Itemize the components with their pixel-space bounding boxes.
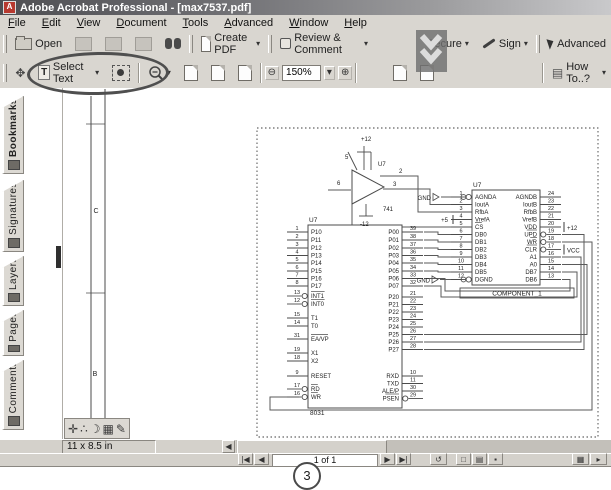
chevron-down-icon: ▾ bbox=[465, 39, 469, 48]
svg-text:GND: GND bbox=[418, 196, 432, 202]
toolbar-grip[interactable] bbox=[3, 64, 7, 82]
svg-text:DGND: DGND bbox=[475, 278, 493, 284]
review-comment-button[interactable]: Review & Comment ▾ bbox=[275, 29, 373, 59]
toolbar-grip[interactable] bbox=[3, 35, 7, 53]
svg-text:741: 741 bbox=[383, 207, 394, 213]
chevron-down-icon: ▾ bbox=[602, 68, 606, 77]
comments-icon bbox=[8, 416, 20, 426]
first-page-button[interactable]: |◀ bbox=[238, 453, 253, 465]
svg-text:CS: CS bbox=[475, 225, 483, 231]
continuous-view-button[interactable]: ▤ bbox=[472, 453, 487, 465]
svg-text:12: 12 bbox=[294, 298, 300, 304]
svg-text:27: 27 bbox=[410, 336, 416, 342]
svg-text:14: 14 bbox=[294, 320, 300, 326]
svg-text:AGNDA: AGNDA bbox=[475, 195, 496, 201]
toolbar-grip[interactable] bbox=[268, 35, 272, 53]
zoom-out-button[interactable]: ⊖ bbox=[265, 66, 279, 80]
svg-text:EA/VP: EA/VP bbox=[311, 337, 329, 343]
svg-text:15: 15 bbox=[548, 258, 554, 264]
scroll-left-button[interactable]: ◀ bbox=[222, 440, 235, 453]
svg-text:33: 33 bbox=[410, 272, 416, 278]
svg-text:RESET: RESET bbox=[311, 374, 331, 380]
svg-text:11: 11 bbox=[410, 377, 416, 383]
svg-text:P12: P12 bbox=[311, 246, 322, 252]
toolbar-grip[interactable] bbox=[536, 35, 540, 53]
fit-width-button[interactable] bbox=[233, 62, 257, 84]
svg-text:P03: P03 bbox=[388, 254, 399, 260]
svg-text:28: 28 bbox=[410, 343, 416, 349]
svg-text:T1: T1 bbox=[311, 316, 319, 322]
svg-text:P16: P16 bbox=[311, 277, 322, 283]
svg-text:P01: P01 bbox=[388, 238, 399, 244]
svg-text:31: 31 bbox=[294, 333, 300, 339]
step-number-annotation: 3 bbox=[293, 462, 321, 490]
svg-text:37: 37 bbox=[410, 242, 416, 248]
status-extra-button[interactable]: ▦ bbox=[572, 453, 589, 465]
svg-text:C: C bbox=[93, 208, 98, 215]
facing-view-button[interactable]: ▪ bbox=[488, 453, 503, 465]
menu-tools[interactable]: Tools bbox=[175, 17, 217, 29]
svg-text:IoutB: IoutB bbox=[523, 203, 537, 209]
svg-text:14: 14 bbox=[548, 266, 554, 272]
svg-text:10: 10 bbox=[410, 370, 416, 376]
svg-text:16: 16 bbox=[294, 391, 300, 397]
svg-text:U7: U7 bbox=[473, 182, 482, 189]
svg-text:P11: P11 bbox=[311, 238, 322, 244]
how-to-icon: ▤ bbox=[552, 68, 563, 78]
svg-text:4: 4 bbox=[459, 213, 462, 219]
cursor-icon bbox=[547, 37, 556, 49]
svg-text:15: 15 bbox=[294, 312, 300, 318]
toolbar-grip[interactable] bbox=[189, 35, 193, 53]
svg-text:23: 23 bbox=[410, 306, 416, 312]
svg-text:DB4: DB4 bbox=[475, 263, 487, 269]
svg-text:1: 1 bbox=[295, 226, 298, 232]
svg-text:19: 19 bbox=[294, 347, 300, 353]
single-page-view-button[interactable]: □ bbox=[456, 453, 471, 465]
svg-text:35: 35 bbox=[410, 257, 416, 263]
svg-text:+12: +12 bbox=[361, 137, 372, 143]
svg-text:DB2: DB2 bbox=[475, 248, 487, 254]
menu-help[interactable]: Help bbox=[336, 17, 375, 29]
svg-text:8: 8 bbox=[295, 280, 298, 286]
advanced-editing-button[interactable]: Advanced bbox=[543, 35, 611, 53]
create-pdf-button[interactable]: Create PDF ▾ bbox=[196, 29, 265, 59]
svg-text:RfbA: RfbA bbox=[475, 210, 488, 216]
how-to-button[interactable]: ▤ How To..? ▾ bbox=[547, 58, 611, 88]
svg-text:4: 4 bbox=[295, 249, 298, 255]
svg-text:CLR: CLR bbox=[525, 248, 538, 254]
svg-text:P17: P17 bbox=[311, 284, 322, 290]
svg-text:P02: P02 bbox=[388, 246, 399, 252]
svg-text:VrefB: VrefB bbox=[522, 218, 537, 224]
svg-text:17: 17 bbox=[294, 383, 300, 389]
zoom-in-button[interactable]: ⊕ bbox=[338, 66, 352, 80]
svg-text:38: 38 bbox=[410, 234, 416, 240]
halftone-icon[interactable]: ☽ bbox=[90, 422, 101, 436]
svg-text:9: 9 bbox=[295, 370, 298, 376]
svg-text:6: 6 bbox=[459, 228, 462, 234]
svg-text:A1: A1 bbox=[530, 255, 538, 261]
last-page-button[interactable]: ▶| bbox=[396, 453, 411, 465]
menu-window[interactable]: Window bbox=[281, 17, 336, 29]
chevron-down-icon: ▾ bbox=[524, 39, 528, 48]
svg-text:P05: P05 bbox=[388, 269, 399, 275]
status-extra-button-2[interactable]: ▸ bbox=[590, 453, 607, 465]
menu-advanced[interactable]: Advanced bbox=[216, 17, 281, 29]
svg-text:10: 10 bbox=[458, 258, 464, 264]
svg-text:TXD: TXD bbox=[387, 382, 400, 388]
window-title: Adobe Acrobat Professional - [max7537.pd… bbox=[20, 2, 251, 14]
svg-text:30: 30 bbox=[410, 385, 416, 391]
chevron-down-icon: ▾ bbox=[256, 39, 260, 48]
svg-text:P23: P23 bbox=[388, 318, 399, 324]
svg-text:DB5: DB5 bbox=[475, 270, 487, 276]
svg-text:20: 20 bbox=[548, 221, 554, 227]
svg-text:5: 5 bbox=[295, 257, 298, 263]
rotate-page-icon bbox=[393, 65, 407, 81]
svg-text:19: 19 bbox=[548, 228, 554, 234]
sidebar-tab-signatures[interactable]: Signatures bbox=[2, 180, 24, 252]
svg-text:6: 6 bbox=[337, 181, 341, 187]
svg-text:26: 26 bbox=[410, 328, 416, 334]
pan-icon[interactable]: ✛ bbox=[68, 422, 78, 436]
svg-text:P13: P13 bbox=[311, 254, 322, 260]
actual-size-icon bbox=[184, 65, 198, 81]
bookmarks-icon bbox=[8, 160, 20, 170]
svg-text:29: 29 bbox=[410, 392, 416, 398]
comment-bubble-icon bbox=[280, 38, 291, 49]
svg-text:DB0: DB0 bbox=[475, 233, 487, 239]
pdf-schematic-page: CBU780311P102P113P124P135P146P157P168P17… bbox=[62, 88, 611, 439]
svg-text:INT0: INT0 bbox=[311, 302, 325, 308]
svg-text:DB3: DB3 bbox=[475, 255, 487, 261]
svg-text:DB7: DB7 bbox=[525, 270, 537, 276]
page-size-readout: 11 x 8.5 in bbox=[62, 440, 156, 454]
svg-text:23: 23 bbox=[548, 198, 554, 204]
panel-resize-grip[interactable] bbox=[56, 246, 61, 268]
svg-text:P10: P10 bbox=[311, 230, 322, 236]
svg-text:T0: T0 bbox=[311, 324, 319, 330]
svg-text:WR: WR bbox=[311, 395, 322, 401]
next-page-button[interactable]: ▶ bbox=[380, 453, 395, 465]
menu-edit[interactable]: Edit bbox=[34, 17, 69, 29]
svg-text:24: 24 bbox=[410, 313, 416, 319]
layers-icon bbox=[8, 293, 20, 302]
hand-icon: ✥ bbox=[15, 66, 25, 80]
separator bbox=[260, 63, 262, 83]
svg-text:3: 3 bbox=[459, 206, 462, 212]
svg-text:U7: U7 bbox=[309, 217, 318, 224]
svg-text:5: 5 bbox=[459, 221, 462, 227]
save-icon bbox=[75, 37, 92, 51]
svg-text:P15: P15 bbox=[311, 269, 322, 275]
svg-text:P06: P06 bbox=[388, 277, 399, 283]
email-button[interactable] bbox=[130, 34, 157, 54]
mini-palette: ✛ ∴ ☽ ▦ ✎ bbox=[64, 418, 130, 439]
pen-icon bbox=[482, 38, 495, 48]
dots-icon[interactable]: ∴ bbox=[80, 422, 88, 436]
svg-text:13: 13 bbox=[548, 273, 554, 279]
svg-text:P25: P25 bbox=[388, 333, 399, 339]
svg-text:P22: P22 bbox=[388, 310, 399, 316]
svg-text:+5: +5 bbox=[441, 218, 449, 224]
svg-text:DB1: DB1 bbox=[475, 240, 487, 246]
menu-document[interactable]: Document bbox=[108, 17, 174, 29]
svg-text:36: 36 bbox=[410, 249, 416, 255]
previous-view-button[interactable]: ↺ bbox=[430, 453, 447, 465]
svg-text:11: 11 bbox=[458, 266, 464, 272]
svg-text:24: 24 bbox=[548, 191, 554, 197]
acrobat-app-icon: A bbox=[3, 1, 16, 14]
sidebar-tab-bookmarks[interactable]: Bookmarks bbox=[2, 96, 24, 174]
pages-icon bbox=[8, 345, 20, 352]
svg-text:P21: P21 bbox=[388, 303, 399, 309]
open-folder-icon bbox=[15, 38, 32, 50]
svg-text:7: 7 bbox=[295, 272, 298, 278]
svg-text:6: 6 bbox=[295, 265, 298, 271]
separator bbox=[355, 63, 357, 83]
print-button[interactable] bbox=[100, 34, 127, 54]
svg-text:X1: X1 bbox=[311, 351, 319, 357]
svg-text:3: 3 bbox=[295, 242, 298, 248]
save-button[interactable] bbox=[70, 34, 97, 54]
svg-text:18: 18 bbox=[548, 236, 554, 242]
binoculars-icon bbox=[165, 38, 181, 49]
svg-text:P20: P20 bbox=[388, 295, 399, 301]
chevron-down-icon: ▾ bbox=[364, 39, 368, 48]
fit-page-button[interactable] bbox=[206, 62, 230, 84]
rotate-pages-button[interactable] bbox=[388, 62, 412, 84]
previous-page-button[interactable]: ◀ bbox=[254, 453, 269, 465]
svg-text:P04: P04 bbox=[388, 261, 399, 267]
svg-text:RXD: RXD bbox=[386, 374, 399, 380]
menu-view[interactable]: View bbox=[69, 17, 109, 29]
svg-text:COMPONENT_1: COMPONENT_1 bbox=[492, 291, 542, 298]
svg-text:17: 17 bbox=[548, 243, 554, 249]
svg-text:22: 22 bbox=[410, 298, 416, 304]
zoom-level-field[interactable]: 150% bbox=[282, 65, 321, 81]
svg-text:DB6: DB6 bbox=[525, 278, 537, 284]
svg-text:P00: P00 bbox=[388, 230, 399, 236]
zoom-dropdown-button[interactable]: ▾ bbox=[324, 66, 335, 80]
svg-text:2: 2 bbox=[295, 234, 298, 240]
svg-text:18: 18 bbox=[294, 355, 300, 361]
email-icon bbox=[135, 37, 152, 51]
menu-file[interactable]: File bbox=[0, 17, 34, 29]
svg-text:P24: P24 bbox=[388, 325, 399, 331]
svg-text:8031: 8031 bbox=[310, 410, 325, 417]
svg-text:39: 39 bbox=[410, 226, 416, 232]
fit-width-icon bbox=[238, 65, 252, 81]
search-button[interactable] bbox=[160, 35, 186, 52]
signatures-icon bbox=[8, 238, 20, 248]
print-icon bbox=[105, 37, 122, 51]
svg-text:22: 22 bbox=[548, 206, 554, 212]
svg-text:A0: A0 bbox=[530, 263, 538, 269]
svg-text:RfbB: RfbB bbox=[524, 210, 537, 216]
svg-text:P26: P26 bbox=[388, 340, 399, 346]
svg-text:AGNDB: AGNDB bbox=[516, 195, 537, 201]
svg-text:P27: P27 bbox=[388, 348, 399, 354]
svg-text:13: 13 bbox=[294, 290, 300, 296]
svg-text:34: 34 bbox=[410, 265, 416, 271]
svg-text:+12: +12 bbox=[567, 226, 578, 232]
svg-text:8: 8 bbox=[459, 243, 462, 249]
sidebar-tab-comments[interactable]: Comments bbox=[2, 360, 24, 430]
svg-text:P07: P07 bbox=[388, 284, 399, 290]
actual-size-button[interactable] bbox=[179, 62, 203, 84]
fit-page-icon bbox=[211, 65, 225, 81]
svg-text:3: 3 bbox=[393, 182, 397, 188]
svg-text:7: 7 bbox=[459, 236, 462, 242]
grid-icon[interactable]: ▦ bbox=[102, 422, 113, 436]
svg-text:B: B bbox=[93, 371, 98, 378]
svg-text:32: 32 bbox=[410, 280, 416, 286]
svg-text:9: 9 bbox=[459, 251, 462, 257]
svg-text:25: 25 bbox=[410, 321, 416, 327]
svg-text:2: 2 bbox=[399, 169, 403, 175]
svg-text:16: 16 bbox=[548, 251, 554, 257]
separator bbox=[542, 63, 544, 83]
create-pdf-icon bbox=[201, 36, 211, 52]
svg-text:PSEN: PSEN bbox=[383, 397, 399, 403]
svg-text:21: 21 bbox=[548, 213, 554, 219]
open-button[interactable]: Open bbox=[10, 35, 67, 53]
svg-text:-12: -12 bbox=[360, 222, 369, 228]
svg-text:21: 21 bbox=[410, 291, 416, 297]
svg-text:VCC: VCC bbox=[567, 249, 580, 255]
stamp-icon[interactable]: ✎ bbox=[116, 422, 126, 436]
sign-button[interactable]: Sign ▾ bbox=[477, 35, 533, 53]
svg-text:GND: GND bbox=[417, 279, 431, 285]
double-down-arrow-annotation bbox=[416, 30, 447, 72]
svg-text:P14: P14 bbox=[311, 261, 322, 267]
svg-text:X2: X2 bbox=[311, 359, 319, 365]
svg-text:5: 5 bbox=[345, 155, 349, 161]
svg-text:U7: U7 bbox=[378, 162, 386, 168]
svg-text:IoutA: IoutA bbox=[475, 203, 489, 209]
title-bar: A Adobe Acrobat Professional - [max7537.… bbox=[0, 0, 611, 15]
